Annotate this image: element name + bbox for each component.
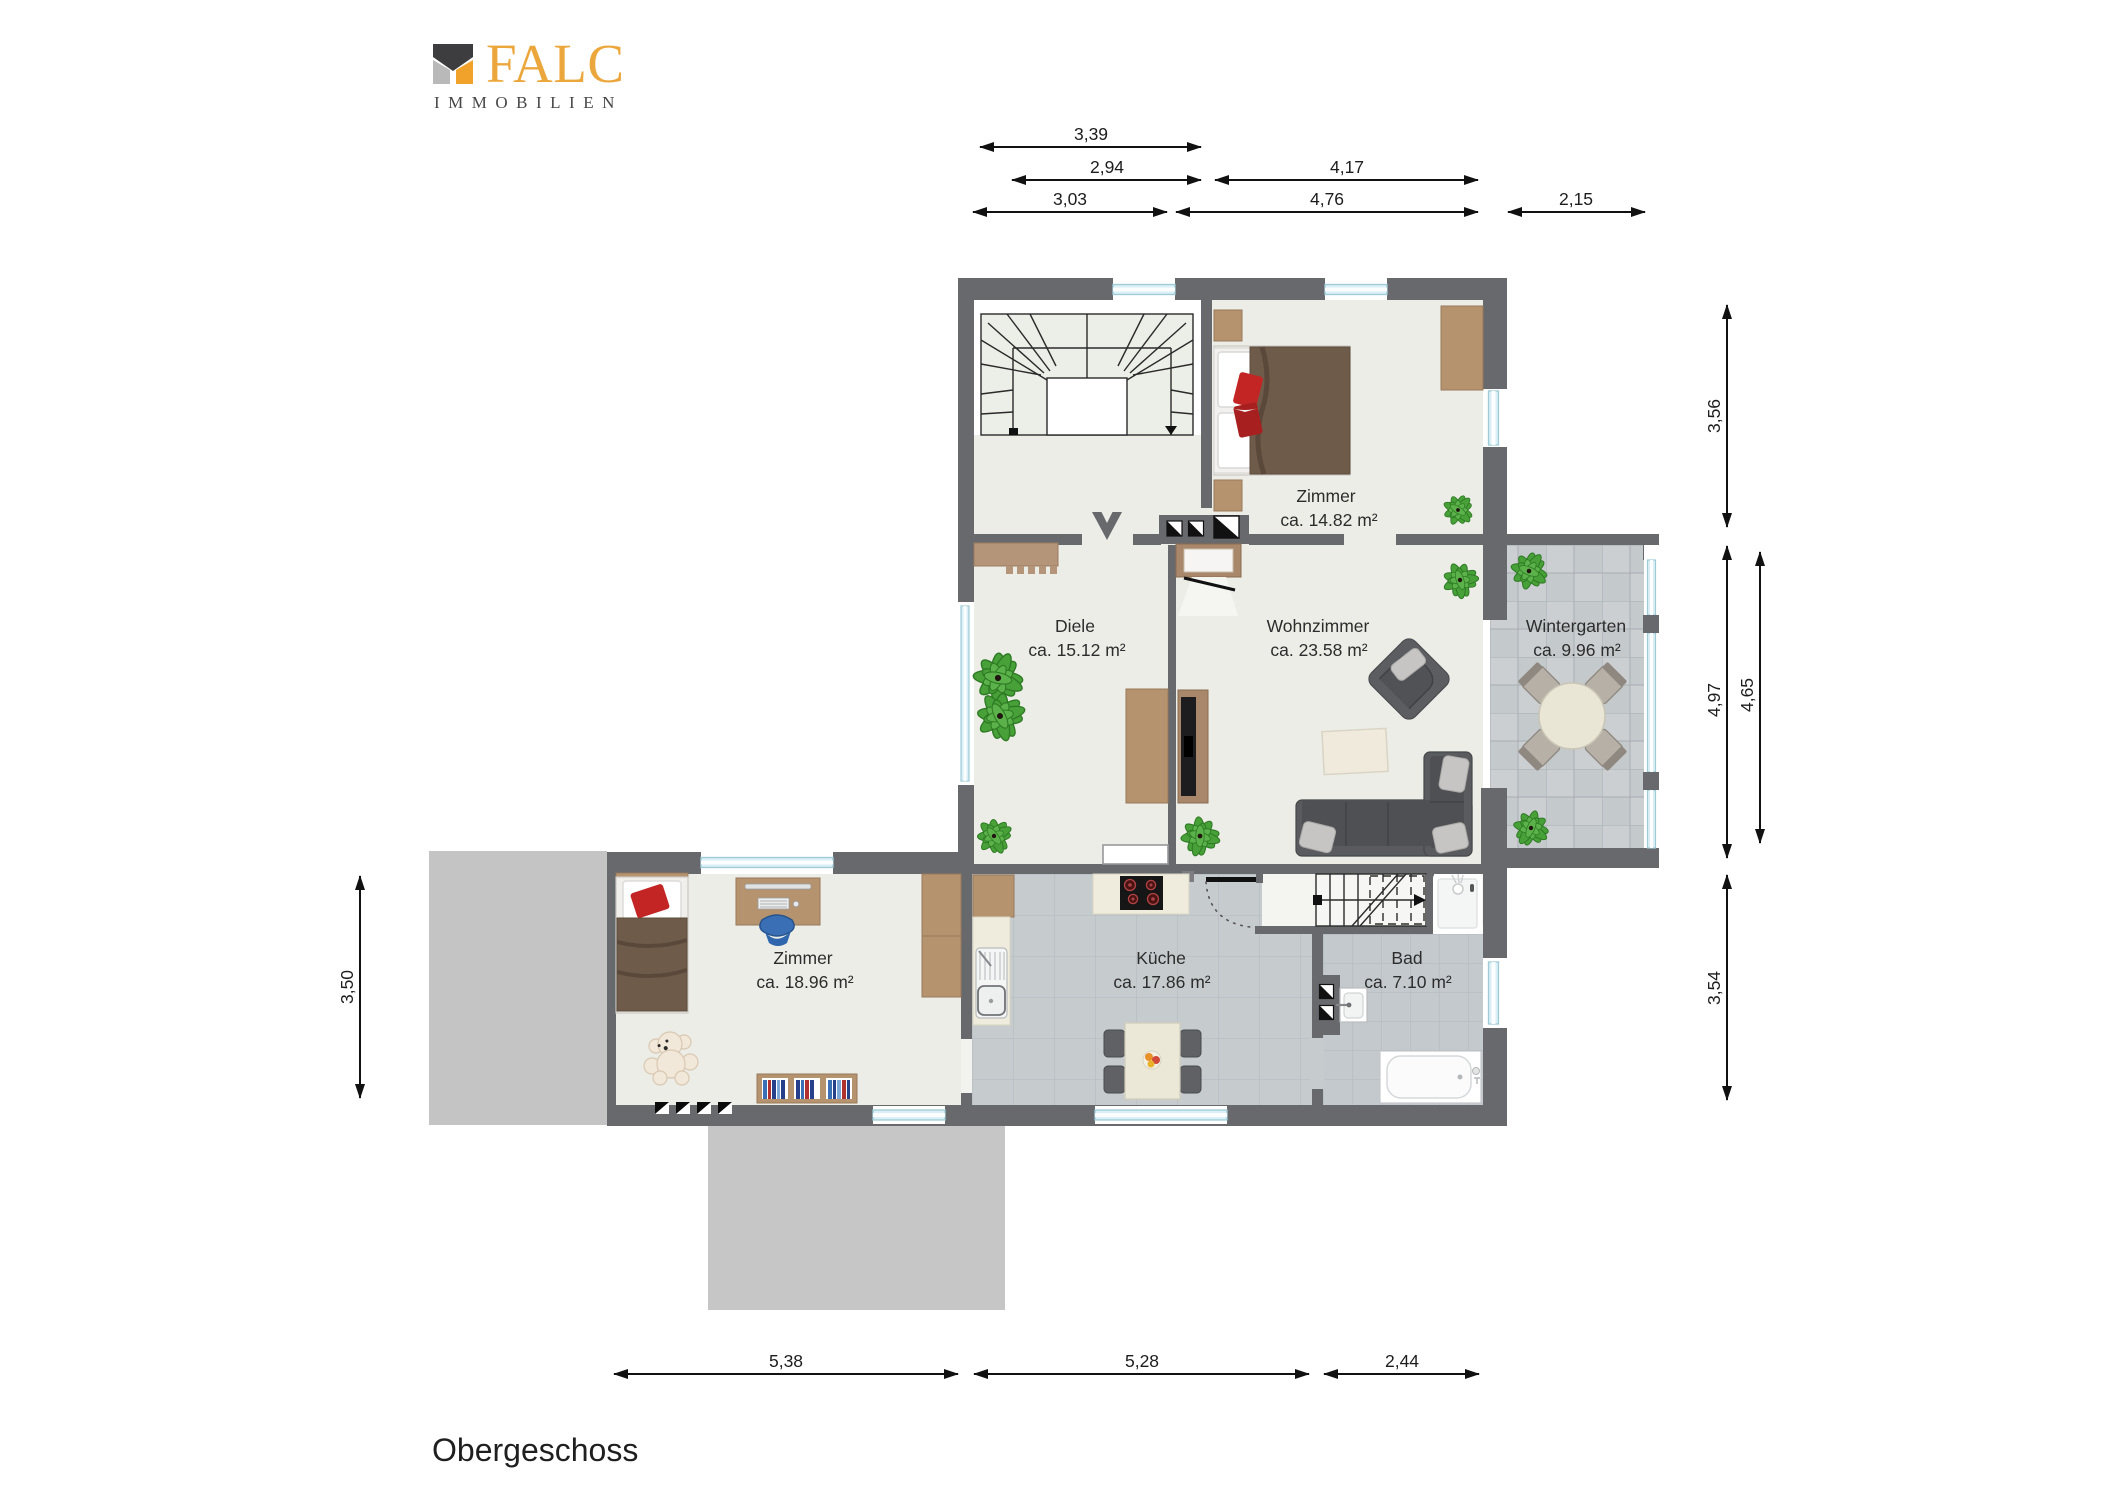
svg-text:ca. 14.82 m²: ca. 14.82 m² xyxy=(1280,510,1377,530)
svg-text:Wintergarten: Wintergarten xyxy=(1526,616,1626,636)
svg-text:ca. 9.96 m²: ca. 9.96 m² xyxy=(1533,640,1621,660)
svg-text:Diele: Diele xyxy=(1055,616,1095,636)
svg-text:ca. 7.10 m²: ca. 7.10 m² xyxy=(1364,972,1452,992)
svg-text:3,54: 3,54 xyxy=(1704,971,1724,1005)
svg-text:Wohnzimmer: Wohnzimmer xyxy=(1267,616,1370,636)
svg-text:2,15: 2,15 xyxy=(1559,189,1593,209)
svg-text:4,65: 4,65 xyxy=(1737,678,1757,712)
svg-text:2,44: 2,44 xyxy=(1385,1351,1419,1371)
svg-text:3,56: 3,56 xyxy=(1704,399,1724,433)
svg-text:3,39: 3,39 xyxy=(1074,124,1108,144)
svg-text:4,97: 4,97 xyxy=(1704,683,1724,717)
svg-text:IMMOBILIEN: IMMOBILIEN xyxy=(434,93,623,112)
svg-text:ca. 17.86 m²: ca. 17.86 m² xyxy=(1113,972,1210,992)
svg-text:ca. 18.96 m²: ca. 18.96 m² xyxy=(756,972,853,992)
svg-text:2,94: 2,94 xyxy=(1090,157,1124,177)
svg-text:5,28: 5,28 xyxy=(1125,1351,1159,1371)
svg-text:Bad: Bad xyxy=(1391,948,1422,968)
svg-text:Obergeschoss: Obergeschoss xyxy=(432,1432,638,1468)
svg-text:4,17: 4,17 xyxy=(1330,157,1364,177)
svg-text:ca. 15.12 m²: ca. 15.12 m² xyxy=(1028,640,1125,660)
svg-text:3,50: 3,50 xyxy=(337,970,357,1004)
svg-text:3,03: 3,03 xyxy=(1053,189,1087,209)
svg-text:5,38: 5,38 xyxy=(769,1351,803,1371)
svg-text:4,76: 4,76 xyxy=(1310,189,1344,209)
svg-text:ca. 23.58 m²: ca. 23.58 m² xyxy=(1270,640,1367,660)
svg-text:Zimmer: Zimmer xyxy=(1296,486,1355,506)
svg-text:Zimmer: Zimmer xyxy=(773,948,832,968)
svg-text:FALC: FALC xyxy=(486,33,625,94)
svg-text:Küche: Küche xyxy=(1136,948,1186,968)
